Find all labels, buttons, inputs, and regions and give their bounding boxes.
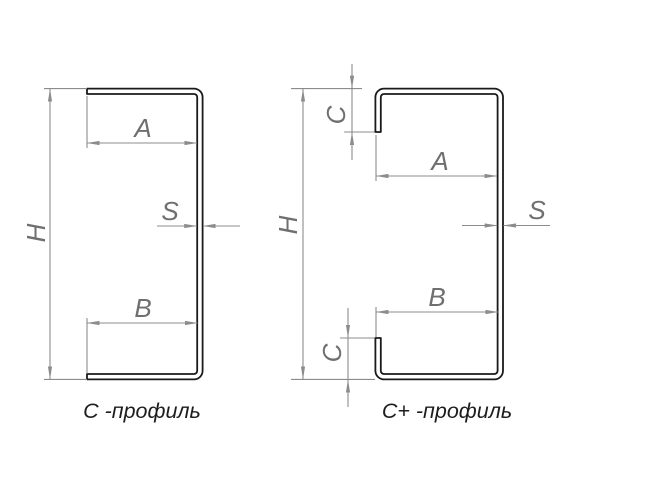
b-dimension-label: B (428, 282, 445, 312)
c-profile-drawing: H A S B C -профиль (21, 89, 240, 423)
h-dimension-label: H (273, 215, 303, 234)
c-plus-profile-caption: C+ -профиль (382, 399, 512, 423)
b-dimension-label: B (134, 293, 151, 323)
c-plus-profile-outline (375, 89, 503, 380)
a-dimension-label: A (132, 113, 151, 143)
c-top-dimension-label: C (321, 105, 351, 124)
s-dimension-label: S (528, 195, 546, 225)
a-dimension-label: A (429, 146, 448, 176)
c-profile-caption: C -профиль (83, 399, 201, 423)
drawing-canvas: H A S B C -профиль H C A (0, 0, 645, 480)
c-plus-profile-drawing: H C A S B C C+ -профиль (273, 64, 550, 423)
s-dimension-label: S (161, 196, 179, 226)
technical-drawing-svg: H A S B C -профиль H C A (0, 0, 645, 480)
h-dimension-label: H (21, 223, 51, 242)
c-bottom-dimension-label: C (317, 343, 347, 362)
